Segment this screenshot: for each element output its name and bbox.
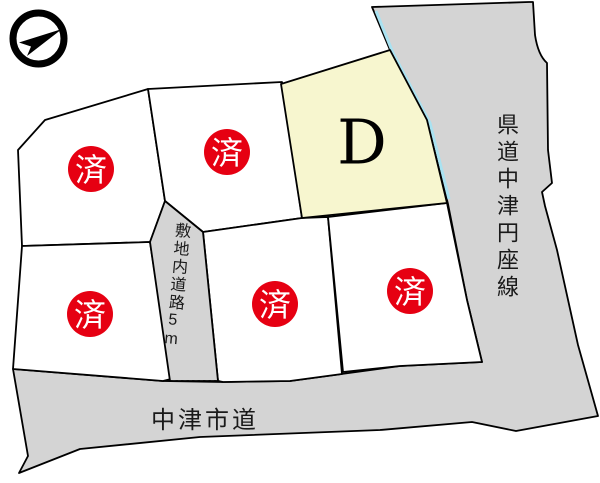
site-plan-map: D 済 済 済 済 済 県道中津円座線 敷地内道路5m 中津市道 — [0, 0, 600, 483]
sold-badge-top-left: 済 — [68, 146, 114, 192]
sold-badge-bottom-middle: 済 — [252, 281, 298, 327]
sold-badge-text: 済 — [394, 274, 426, 310]
sold-badge-text: 済 — [75, 152, 107, 188]
sold-badge-bottom-left: 済 — [67, 291, 113, 337]
sold-badge-text: 済 — [259, 287, 291, 323]
prefectural-road-label: 県道中津円座線 — [490, 113, 522, 302]
sold-badge-text: 済 — [211, 135, 243, 171]
sold-badge-top-middle: 済 — [204, 129, 250, 175]
north-arrow-icon — [13, 13, 64, 64]
city-road-label: 中津市道 — [151, 400, 259, 435]
sold-badge-bottom-right: 済 — [387, 268, 433, 314]
lot-d-label: D — [337, 106, 387, 179]
sold-badge-text: 済 — [74, 297, 106, 333]
